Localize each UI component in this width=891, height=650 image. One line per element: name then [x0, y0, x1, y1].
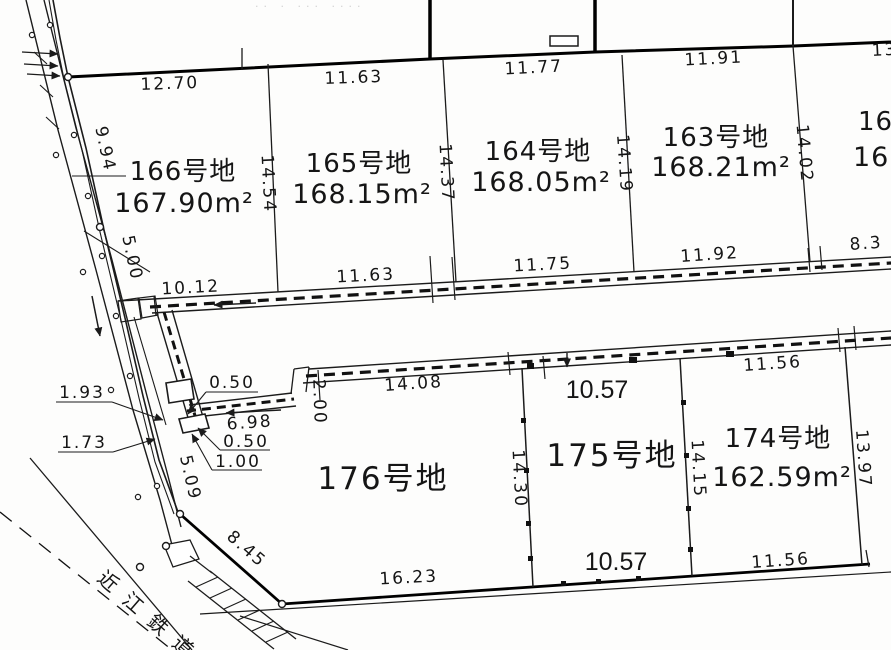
- dim-west-lower: 5.00: [117, 233, 146, 282]
- dim-west-upper: 9.94: [90, 124, 119, 173]
- parcel-label-162-cut: 16: [858, 107, 891, 137]
- parcel-label-164: 164号地: [485, 137, 592, 167]
- dim-side-165-164: 14.37: [434, 143, 457, 203]
- parcel-label-176: 176号地: [317, 461, 448, 497]
- dim-offset-1-93: 1.93: [59, 383, 105, 403]
- junction-box: [179, 414, 209, 433]
- parcel-area-163: 168.21m²: [651, 152, 791, 183]
- dim-side-175-174: 14.15: [686, 439, 709, 499]
- road-direction-arrow: [92, 296, 100, 336]
- north-boundary-line: [68, 42, 891, 77]
- dim-top-175: 10.57: [566, 376, 629, 404]
- dim-strip-14-08: 14.08: [384, 372, 444, 396]
- parcel-area-174: 162.59m²: [712, 462, 852, 493]
- parcel-label-163: 163号地: [663, 123, 770, 153]
- dim-bot-163: 11.92: [680, 243, 740, 267]
- culvert-box: [166, 379, 194, 403]
- parcel-area-166: 167.90m²: [114, 188, 254, 219]
- parcel-label-174: 174号地: [725, 424, 832, 454]
- dim-top-165: 11.63: [324, 67, 383, 89]
- dim-road-5-09: 5.09: [175, 453, 205, 502]
- parcel-label-165: 165号地: [306, 149, 413, 179]
- upper-ditch-strip: [118, 246, 891, 316]
- parcel-label-166: 166号地: [130, 157, 237, 187]
- parcel-area-165: 168.15m²: [292, 179, 432, 210]
- dim-ditch-width-upper: 0.50: [209, 373, 255, 393]
- dim-ditch-width-lower: 0.50: [223, 432, 269, 452]
- lower-ditch-strip: [179, 326, 891, 433]
- dim-top-164: 11.77: [504, 56, 564, 79]
- dim-offset-1-00: 1.00: [215, 452, 261, 472]
- dim-side-166-165: 14.54: [256, 154, 279, 214]
- dim-top-162-cut: 13: [871, 40, 891, 61]
- dim-bot-175: 10.57: [585, 548, 648, 576]
- dim-top-174: 11.56: [743, 352, 803, 376]
- dim-bot-176: 16.23: [379, 566, 439, 589]
- dim-side-174-east: 13.97: [851, 429, 875, 489]
- dim-bot-174: 11.56: [751, 549, 811, 573]
- faint-scan-text: ·· · ··· ····: [255, 0, 365, 13]
- cadastral-map: ·· · ··· ····: [0, 0, 891, 650]
- railway-label: 近江鉄道: [93, 566, 208, 650]
- dim-offset-1-73: 1.73: [61, 433, 107, 453]
- railway: [0, 458, 348, 650]
- parcel-area-162-cut: 168: [853, 142, 891, 173]
- dim-side-164-163: 14.19: [612, 134, 636, 194]
- dim-bot-164: 11.75: [513, 253, 573, 276]
- parcel-area-164: 168.05m²: [471, 167, 611, 198]
- dim-bot-162-cut: 8.3: [849, 233, 883, 255]
- dim-side-176-175: 14.30: [507, 449, 530, 509]
- cadastral-map-page: ·· · ··· ····: [0, 0, 891, 650]
- dim-top-166: 12.70: [140, 73, 199, 95]
- dim-bot-165: 11.63: [336, 264, 396, 287]
- dim-top-163: 11.91: [684, 47, 744, 70]
- dim-diag-176: 8.45: [222, 527, 270, 572]
- dim-bot-166: 10.12: [161, 276, 221, 299]
- parcel-label-175: 175号地: [546, 438, 677, 474]
- dim-side-163-162: 14.02: [791, 123, 816, 183]
- dim-jog-2-00: 2.00: [308, 379, 330, 426]
